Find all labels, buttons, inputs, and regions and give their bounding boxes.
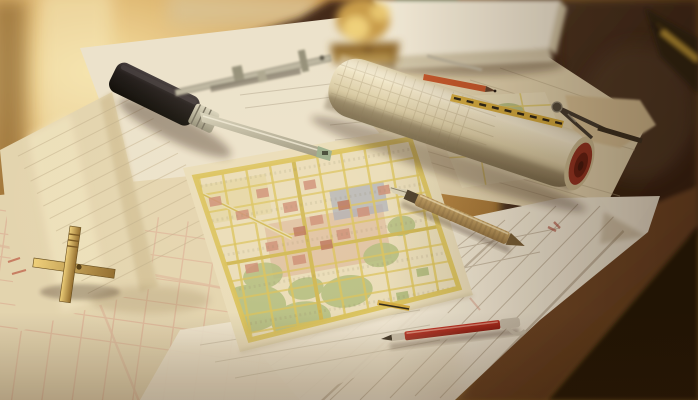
photo-drafting-desk [0,0,698,400]
light-overlays [0,0,698,400]
